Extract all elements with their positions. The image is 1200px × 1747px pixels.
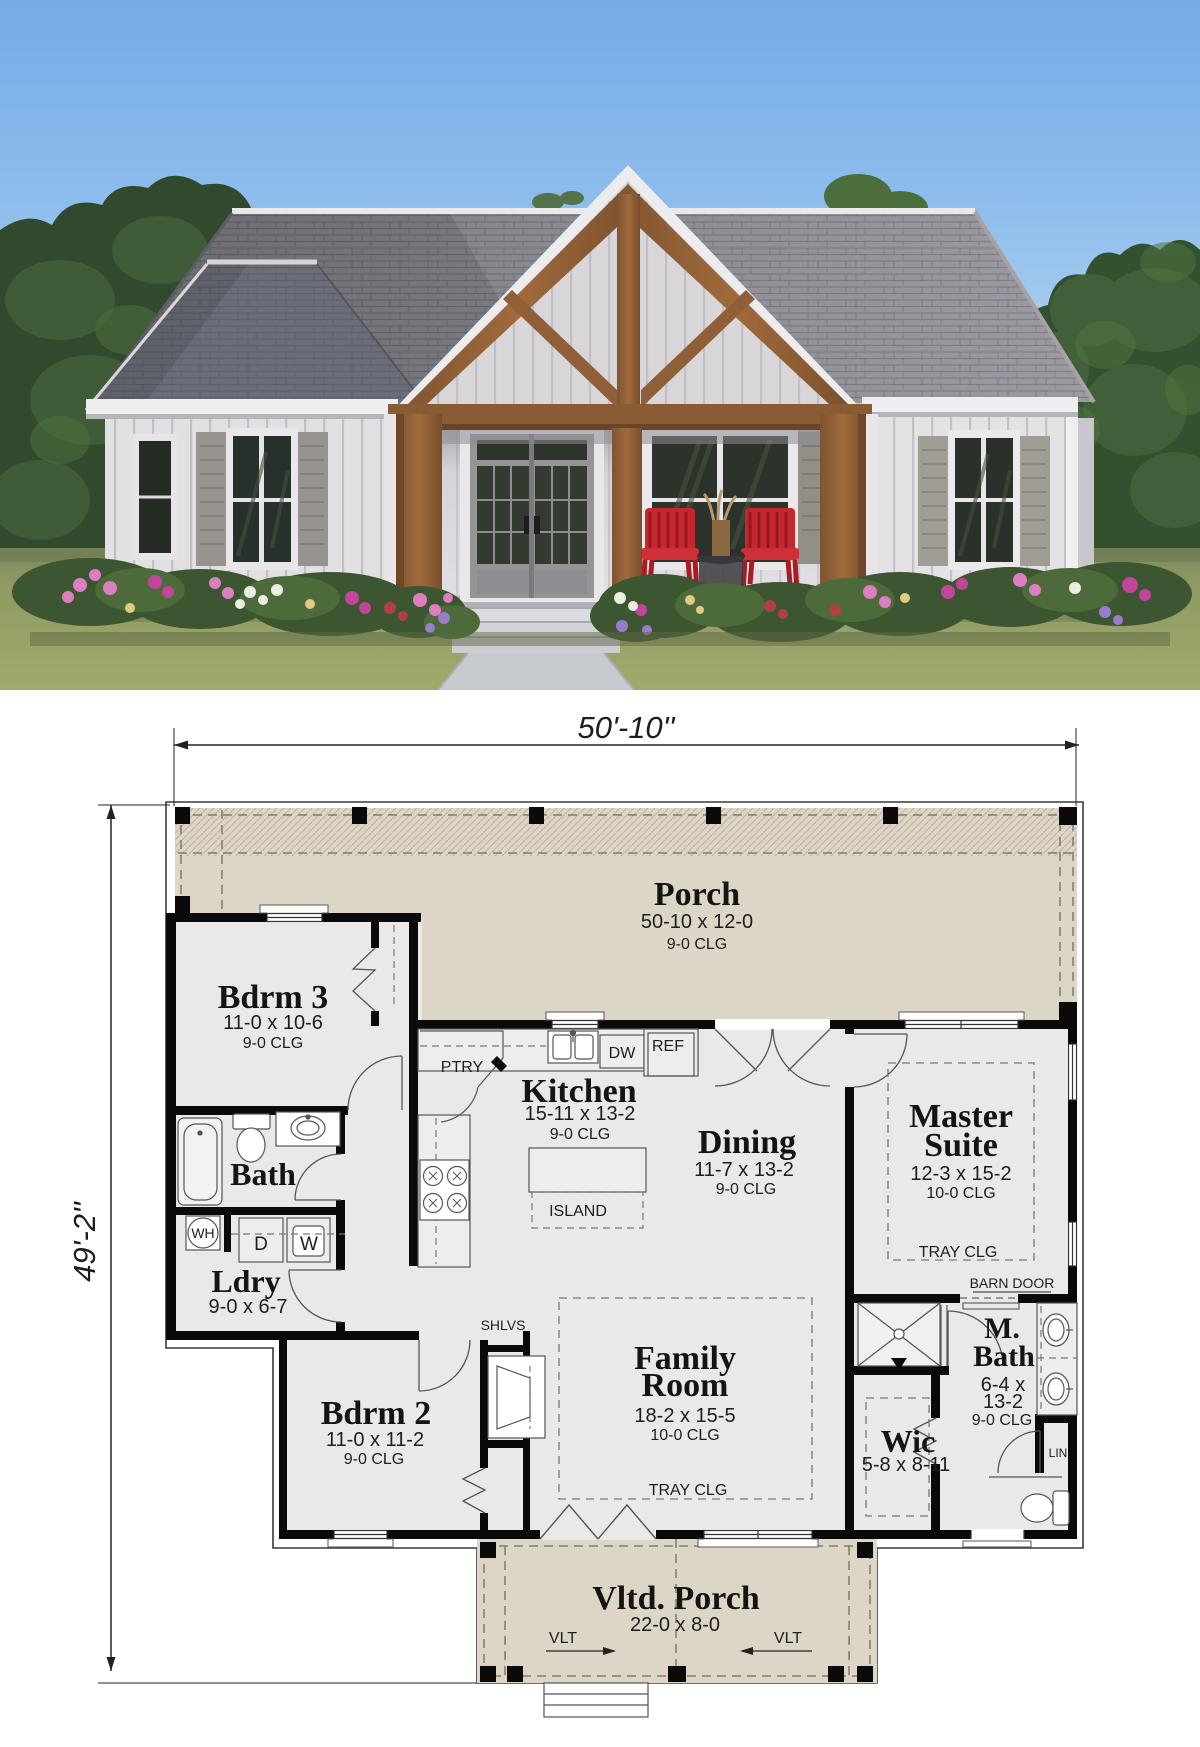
svg-text:REF: REF bbox=[652, 1038, 684, 1055]
svg-text:W: W bbox=[300, 1234, 318, 1255]
svg-text:50'-10'': 50'-10'' bbox=[577, 710, 675, 745]
svg-text:9-0 x 6-7: 9-0 x 6-7 bbox=[209, 1296, 288, 1318]
svg-text:12-3 x 15-2: 12-3 x 15-2 bbox=[910, 1163, 1011, 1185]
svg-text:Vltd. Porch: Vltd. Porch bbox=[592, 1580, 760, 1617]
svg-text:11-7 x 13-2: 11-7 x 13-2 bbox=[694, 1159, 794, 1181]
svg-text:10-0 CLG: 10-0 CLG bbox=[926, 1185, 995, 1202]
svg-text:Bath: Bath bbox=[230, 1156, 296, 1192]
svg-text:Bdrm 2: Bdrm 2 bbox=[321, 1395, 432, 1432]
svg-text:11-0 x 10-6: 11-0 x 10-6 bbox=[223, 1012, 323, 1034]
svg-text:Suite: Suite bbox=[924, 1127, 998, 1164]
svg-text:VLT: VLT bbox=[549, 1630, 577, 1647]
svg-text:50-10 x 12-0: 50-10 x 12-0 bbox=[641, 911, 753, 933]
svg-text:9-0 CLG: 9-0 CLG bbox=[550, 1126, 610, 1143]
svg-text:5-8 x 8-11: 5-8 x 8-11 bbox=[862, 1454, 951, 1476]
svg-text:22-0 x 8-0: 22-0 x 8-0 bbox=[630, 1614, 720, 1636]
svg-text:9-0 CLG: 9-0 CLG bbox=[972, 1412, 1032, 1429]
svg-text:Porch: Porch bbox=[654, 876, 740, 913]
svg-text:13-2: 13-2 bbox=[983, 1391, 1023, 1413]
svg-text:VLT: VLT bbox=[774, 1630, 802, 1647]
svg-text:15-11 x 13-2: 15-11 x 13-2 bbox=[525, 1103, 636, 1125]
svg-text:Room: Room bbox=[642, 1367, 729, 1404]
svg-text:11-0 x 11-2: 11-0 x 11-2 bbox=[326, 1429, 424, 1451]
svg-text:9-0 CLG: 9-0 CLG bbox=[344, 1451, 404, 1468]
svg-text:LIN: LIN bbox=[1049, 1446, 1068, 1460]
svg-text:ISLAND: ISLAND bbox=[549, 1203, 607, 1220]
svg-text:DW: DW bbox=[609, 1045, 637, 1062]
svg-text:18-2 x 15-5: 18-2 x 15-5 bbox=[634, 1405, 735, 1427]
svg-text:D: D bbox=[254, 1234, 268, 1255]
svg-text:WH: WH bbox=[191, 1225, 214, 1241]
svg-text:PTRY: PTRY bbox=[441, 1059, 484, 1076]
svg-text:Ldry: Ldry bbox=[211, 1263, 280, 1299]
svg-text:Bdrm 3: Bdrm 3 bbox=[218, 979, 329, 1016]
svg-text:9-0 CLG: 9-0 CLG bbox=[243, 1035, 303, 1052]
svg-text:TRAY CLG: TRAY CLG bbox=[919, 1244, 998, 1261]
svg-text:BARN DOOR: BARN DOOR bbox=[970, 1275, 1055, 1291]
svg-text:Bath: Bath bbox=[973, 1340, 1035, 1373]
svg-text:SHLVS: SHLVS bbox=[481, 1317, 526, 1333]
svg-text:Dining: Dining bbox=[698, 1124, 796, 1161]
svg-text:9-0 CLG: 9-0 CLG bbox=[667, 936, 727, 953]
svg-text:9-0 CLG: 9-0 CLG bbox=[716, 1181, 776, 1198]
svg-text:10-0 CLG: 10-0 CLG bbox=[650, 1427, 719, 1444]
svg-text:49'-2'': 49'-2'' bbox=[67, 1201, 102, 1282]
svg-text:TRAY CLG: TRAY CLG bbox=[649, 1482, 728, 1499]
